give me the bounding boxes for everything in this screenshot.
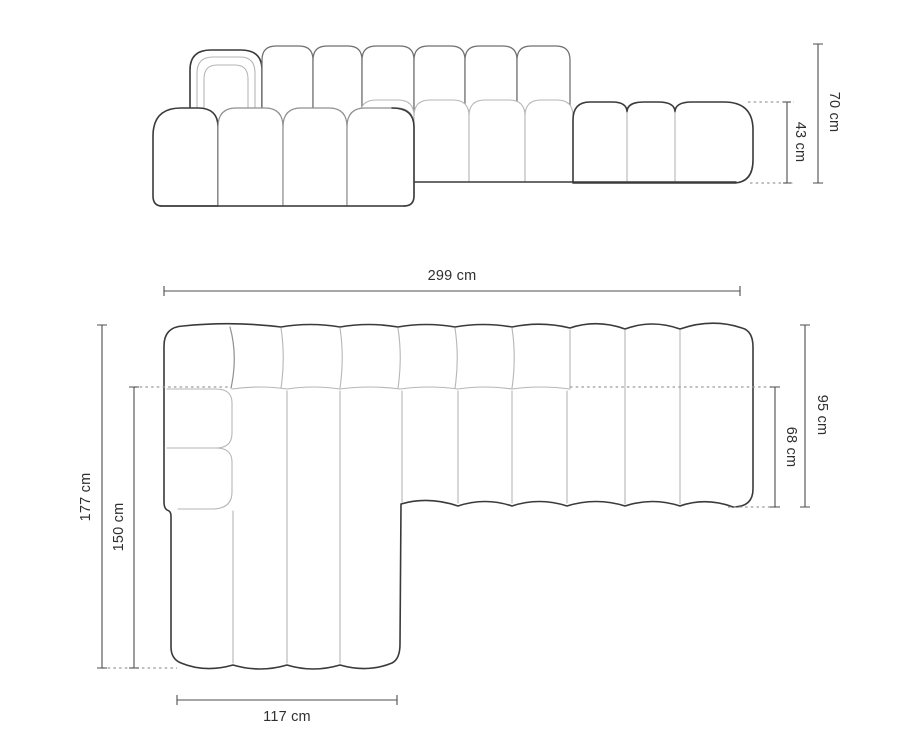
- front-view-drawing: [153, 44, 823, 206]
- front-backrest-channels: [262, 46, 570, 110]
- dim-label-seat-depth: 68 cm: [783, 427, 799, 468]
- dim-label-chaise-inner-length: 150 cm: [111, 503, 127, 552]
- front-armrest: [190, 50, 262, 115]
- dim-label-total-width: 299 cm: [428, 268, 477, 284]
- dim-label-seat-height: 43 cm: [792, 122, 808, 163]
- front-view-dimensions: [748, 44, 823, 183]
- dim-label-total-depth: 95 cm: [814, 395, 830, 436]
- dim-label-chaise-total-length: 177 cm: [78, 473, 94, 522]
- line-art: [0, 0, 900, 741]
- front-backless-section: [573, 102, 753, 183]
- dim-label-total-height: 70 cm: [826, 92, 842, 133]
- sofa-dimension-diagram: 70 cm 43 cm 299 cm 177 cm 150 cm 95 cm 6…: [0, 0, 900, 741]
- dim-label-chaise-width: 117 cm: [263, 709, 311, 725]
- top-view-drawing: [97, 286, 810, 705]
- front-chaise-cushions: [153, 108, 414, 206]
